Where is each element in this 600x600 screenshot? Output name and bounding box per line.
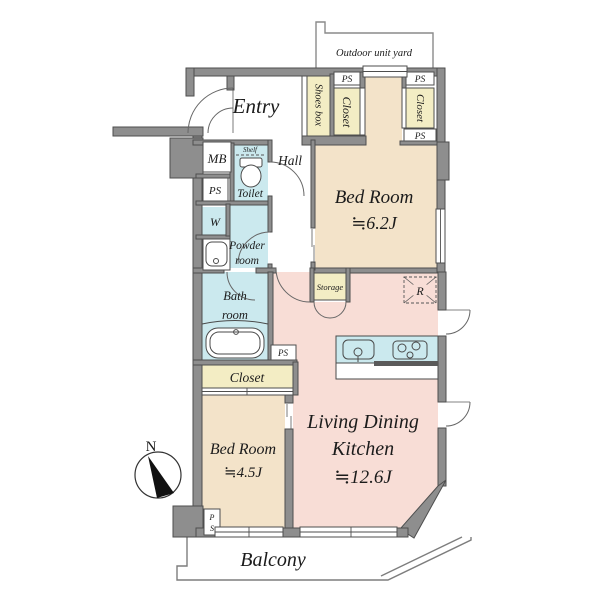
north-compass-icon: N <box>135 439 181 498</box>
ps-top-left-label: PS <box>341 75 353 85</box>
ps-bottom-s-label: S <box>210 524 214 533</box>
toilet-label: Toilet <box>237 188 264 200</box>
bedroom-south-sliding-door <box>287 404 291 429</box>
closet-south-sliding-front <box>202 388 293 395</box>
window-south-ldk <box>300 527 397 537</box>
counter-partition <box>374 361 438 366</box>
ldk-side-door-lower <box>446 402 470 426</box>
closet-north-right-front <box>402 88 406 128</box>
bedroom-north-label: Bed Room <box>335 187 414 208</box>
refrigerator-mark: R <box>415 284 424 298</box>
north-label: N <box>146 439 157 455</box>
entry-label: Entry <box>232 94 280 118</box>
mb-label: MB <box>207 151 227 166</box>
shoes-box-label: Shoes box <box>313 84 324 127</box>
floor-plan-drawing: Outdoor unit yard Balcony <box>0 0 600 600</box>
bath-room-label-2: room <box>222 308 248 322</box>
powder-room-label-2: room <box>235 255 259 267</box>
ldk-side-door-upper <box>446 310 470 334</box>
bedroom-south-size: ≒4.5J <box>224 465 263 481</box>
entry-door <box>188 88 233 133</box>
hall-label: Hall <box>277 153 302 168</box>
storage-label: Storage <box>317 282 344 292</box>
floor-plan: Outdoor unit yard Balcony <box>0 0 600 600</box>
ps-mid-right-label: PS <box>414 132 426 142</box>
washer-label: W <box>210 215 221 229</box>
ldk-floor <box>272 272 438 529</box>
ps-bath-label: PS <box>277 348 288 358</box>
outdoor-unit-yard: Outdoor unit yard <box>316 22 433 68</box>
window-east <box>436 209 445 263</box>
ps-left-label: PS <box>208 185 222 197</box>
washbasin-box <box>203 239 230 270</box>
ps-top-right-label: PS <box>414 75 426 85</box>
ldk-size: ≒12.6J <box>334 467 393 488</box>
powder-room-label-1: Powder <box>228 240 265 252</box>
toilet-icon <box>240 158 262 187</box>
window-north <box>363 66 407 77</box>
closet-south-label: Closet <box>230 370 266 385</box>
bedroom-south-label: Bed Room <box>210 441 276 458</box>
bedroom-north-size: ≒6.2J <box>351 213 398 233</box>
balcony-label: Balcony <box>240 549 306 571</box>
bedroom-north-sliding-door <box>312 229 314 263</box>
balcony: Balcony <box>177 537 471 580</box>
closet-north-left-front <box>360 88 365 135</box>
ldk-label-2: Kitchen <box>331 438 394 460</box>
bedroom-south-floor <box>202 395 285 528</box>
ps-bottom-p-label: P <box>209 513 215 522</box>
shoes-box-front <box>302 76 307 136</box>
closet-north-left-label: Closet <box>340 97 354 128</box>
shelf-label: Shelf <box>243 146 258 154</box>
ldk-label-1: Living Dining <box>306 411 419 433</box>
window-south-bedroom <box>215 527 283 537</box>
outdoor-unit-yard-label: Outdoor unit yard <box>336 48 413 59</box>
closet-north-right-label: Closet <box>414 94 426 123</box>
bath-room-label-1: Bath <box>223 289 247 303</box>
